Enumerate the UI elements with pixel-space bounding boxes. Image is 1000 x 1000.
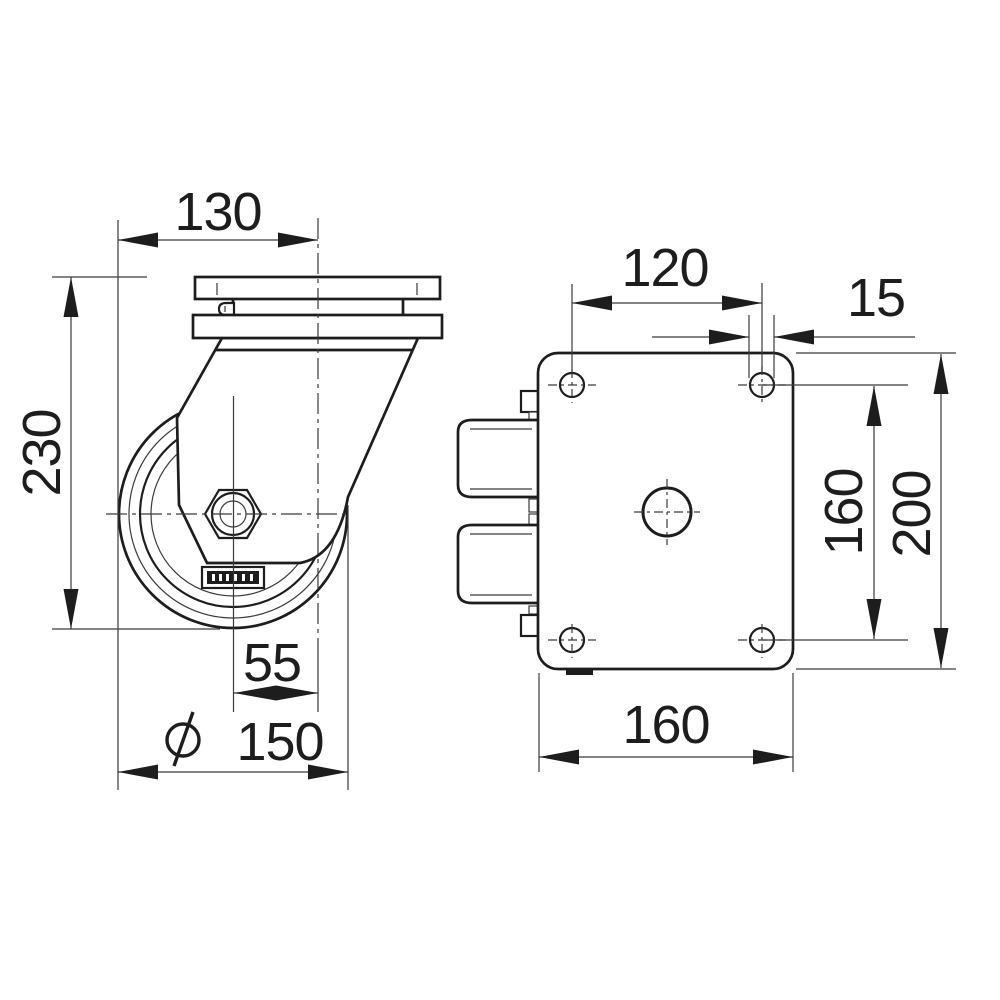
fork-gusset-tab — [521, 615, 538, 636]
dimension-160-horizontal: 160 — [539, 673, 793, 772]
dimension-55: 55 — [234, 633, 318, 701]
dim-55-label: 55 — [243, 633, 301, 693]
dim-200-label: 200 — [882, 470, 942, 557]
dim-160h-label: 160 — [622, 695, 709, 755]
fork-legs-projection — [458, 391, 538, 636]
fork-leg-upper — [458, 420, 538, 497]
fork-leg-lower — [458, 525, 538, 603]
technical-drawing-canvas: 130 230 55 150 — [0, 0, 1000, 1000]
diameter-symbol — [167, 712, 199, 766]
dim-150-label: 150 — [236, 712, 323, 772]
grease-fitting — [219, 303, 234, 315]
mounting-plate-top-view: 120 15 160 200 — [458, 238, 956, 772]
dim-15-label: 15 — [847, 268, 905, 328]
fork-gusset-tab — [521, 391, 538, 412]
dim-120-label: 120 — [621, 238, 708, 298]
dim-160v-label: 160 — [814, 468, 874, 555]
caster-side-view: 130 230 55 150 — [12, 182, 442, 790]
dim-230-label: 230 — [12, 409, 72, 496]
swivel-bearing — [219, 299, 403, 315]
dim-130-label: 130 — [174, 182, 261, 242]
plate-bottom-notch — [566, 669, 593, 675]
mounting-plate-outline — [538, 353, 793, 669]
caster-drawing: 130 230 55 150 — [0, 0, 1000, 1000]
